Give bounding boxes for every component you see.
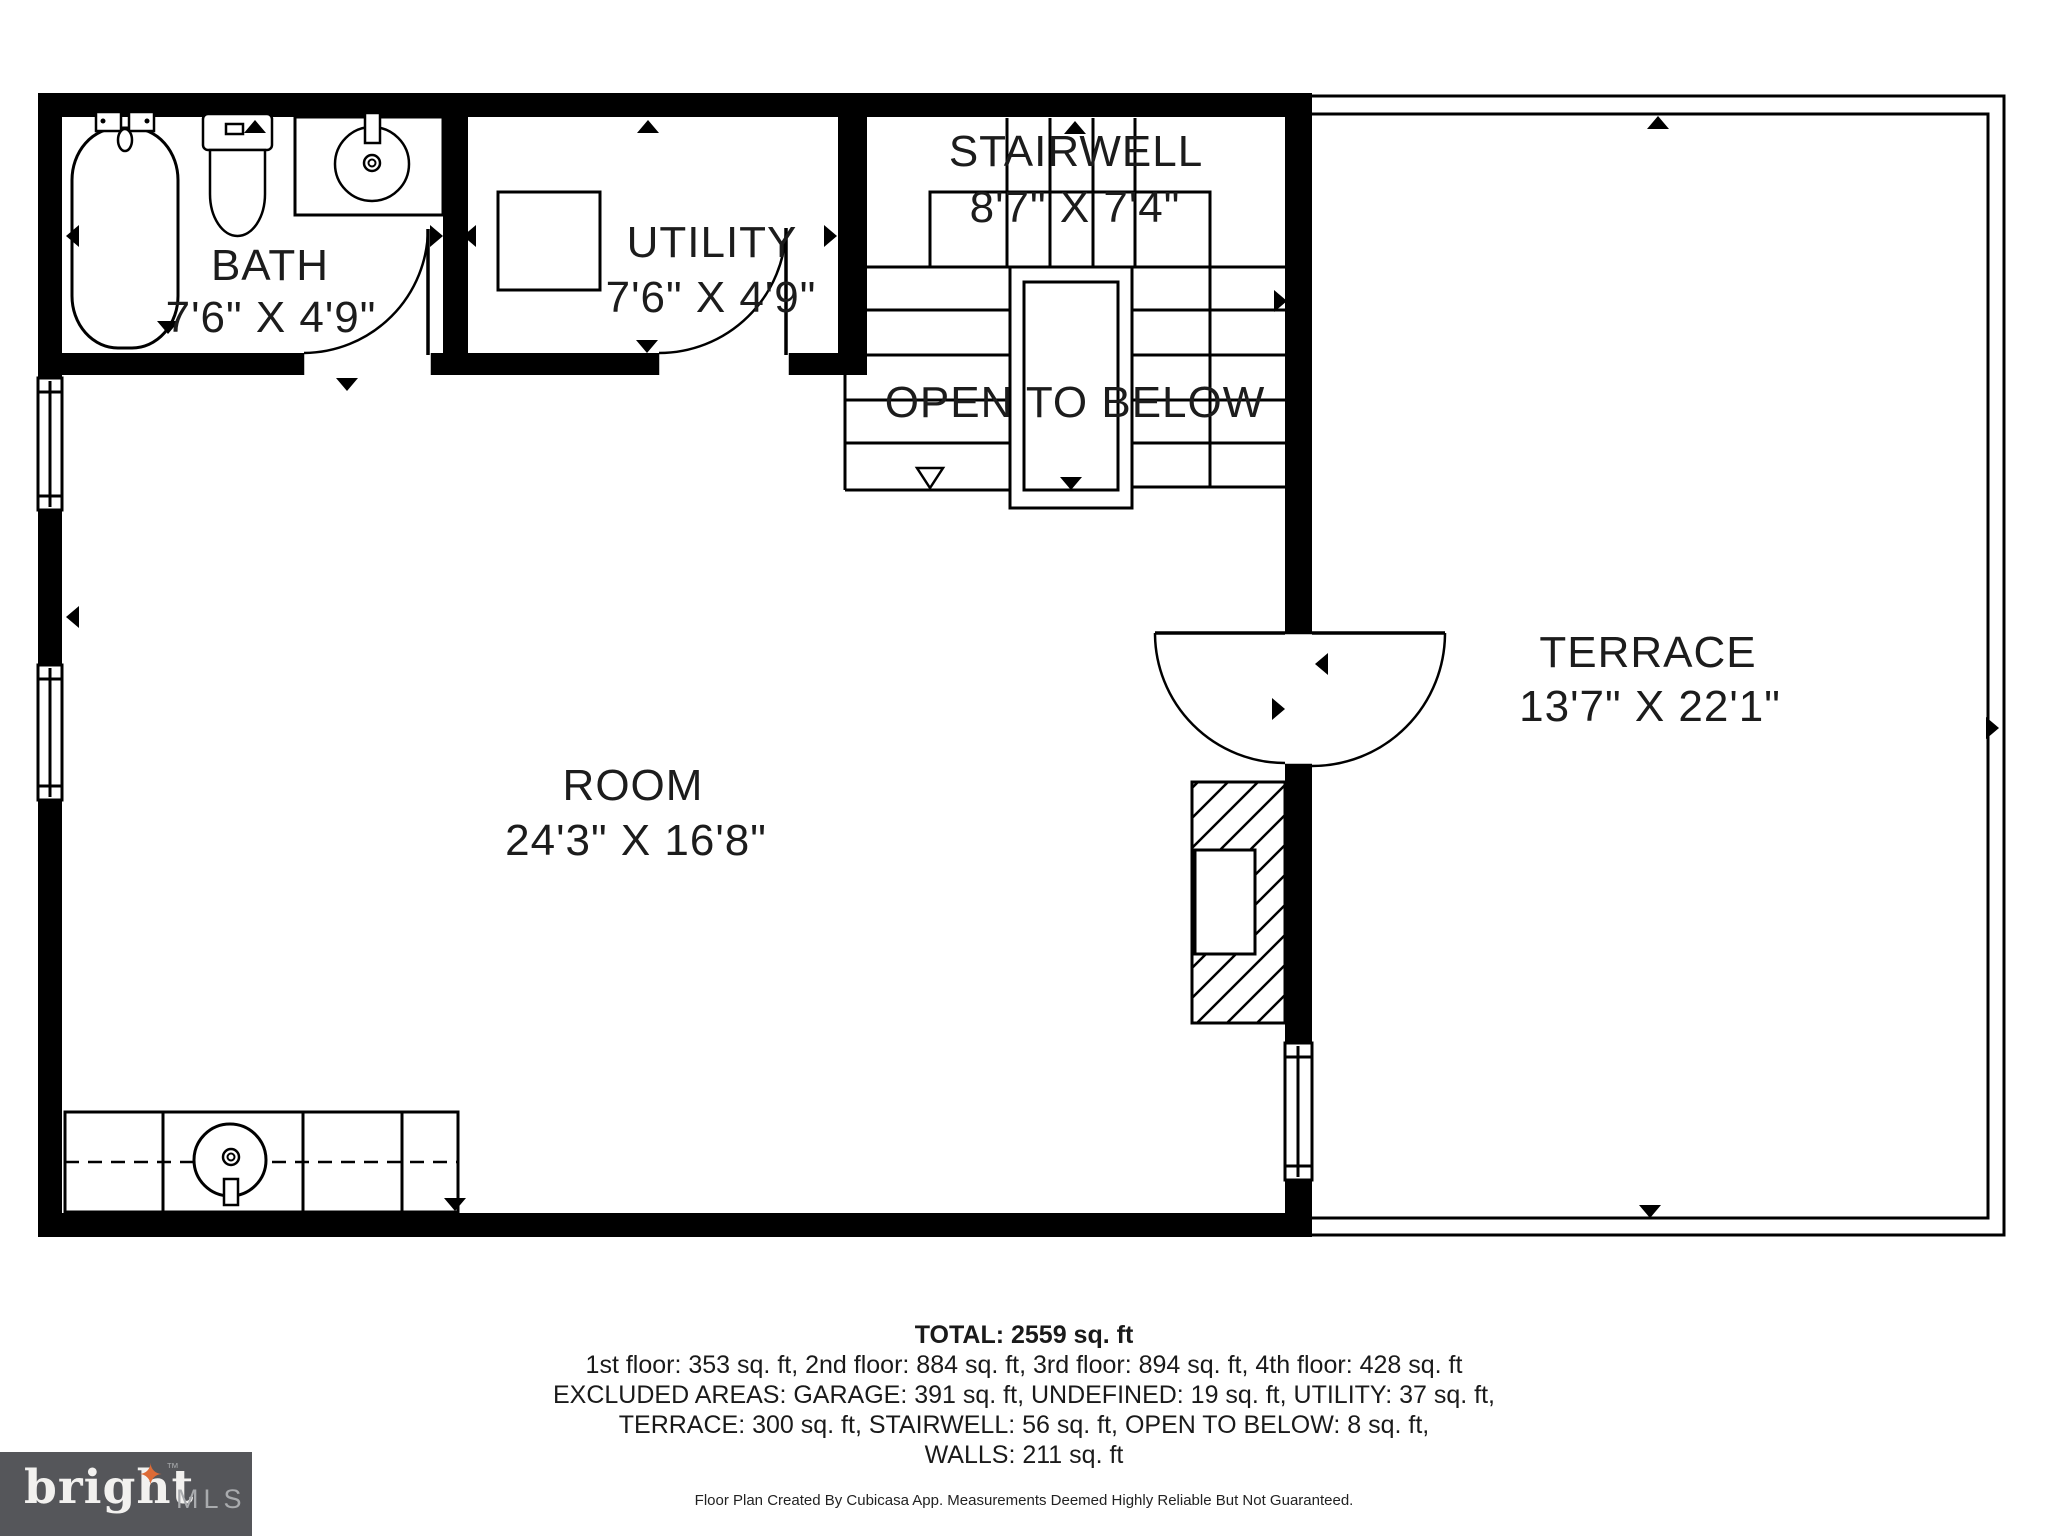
floors-area-text: 1st floor: 353 sq. ft, 2nd floor: 884 sq…: [0, 1350, 2048, 1380]
arrow-left-room: [66, 606, 79, 628]
bottom-wall: [38, 1213, 1312, 1237]
window-left-upper: [38, 378, 62, 510]
arrow-down-utility: [636, 340, 658, 353]
utility-label: UTILITY: [627, 218, 798, 267]
star-icon: ✦: [138, 1458, 163, 1493]
stair-direction-open-arrow: [917, 468, 943, 488]
stairwell-label: STAIRWELL: [949, 127, 1203, 176]
window-right: [1285, 1043, 1312, 1180]
terrace-dimensions: 13'7" X 22'1": [1519, 682, 1781, 731]
window-left-lower: [38, 665, 62, 800]
excluded-areas-text-2: TERRACE: 300 sq. ft, STAIRWELL: 56 sq. f…: [0, 1410, 2048, 1440]
utility-appliance: [498, 192, 600, 290]
room-dimensions: 24'3" X 16'8": [505, 816, 767, 865]
right-wall-lower: [1285, 1180, 1312, 1220]
stairwell-dimensions: 8'7" X 7'4": [970, 183, 1181, 232]
room-labels: BATH 7'6" X 4'9" UTILITY 7'6" X 4'9" STA…: [166, 127, 1781, 865]
floor-plan-page: { "floor_plan": { "rooms": [ {"name": "B…: [0, 0, 2048, 1536]
total-area-text: TOTAL: 2559 sq. ft: [0, 1320, 2048, 1350]
trademark-symbol: ™: [166, 1460, 179, 1475]
right-wall-upper: [1285, 93, 1312, 633]
bath-sink: [295, 113, 443, 215]
excluded-areas-text-1: EXCLUDED AREAS: GARAGE: 391 sq. ft, UNDE…: [0, 1380, 2048, 1410]
arrow-up-terrace: [1647, 116, 1669, 129]
arrow-right-terrace-edge: [1986, 717, 1999, 739]
arrow-left-terrace: [1315, 653, 1328, 675]
bath-utility-bottom-wall-1: [38, 353, 303, 375]
arrow-down-terrace: [1639, 1205, 1661, 1218]
bath-label: BATH: [211, 241, 329, 290]
right-wall-middle: [1285, 765, 1312, 1043]
arrow-up-utility: [637, 120, 659, 133]
bath-dimensions: 7'6" X 4'9": [166, 293, 377, 342]
area-summary: TOTAL: 2559 sq. ft 1st floor: 353 sq. ft…: [0, 1320, 2048, 1509]
stairs: [845, 118, 1285, 508]
arrow-right-bath: [430, 225, 443, 247]
bright-mls-logo: bright ✦ ™ MLS: [0, 1452, 252, 1536]
kitchen-counter: [65, 1112, 458, 1212]
logo-suffix: MLS: [176, 1484, 247, 1515]
open-to-below-label: OPEN TO BELOW: [885, 378, 1266, 427]
terrace-double-door: [1155, 633, 1445, 766]
bathtub: [72, 112, 178, 348]
hatched-shaft: [1192, 782, 1285, 1023]
terrace-label: TERRACE: [1539, 628, 1756, 677]
arrow-down-room-top: [336, 378, 358, 391]
walls-area-text: WALLS: 211 sq. ft: [0, 1440, 2048, 1470]
arrow-right-room: [1272, 698, 1285, 720]
disclaimer-text: Floor Plan Created By Cubicasa App. Meas…: [0, 1492, 2048, 1509]
floor-plan-drawing: BATH 7'6" X 4'9" UTILITY 7'6" X 4'9" STA…: [0, 0, 2048, 1536]
utility-dimensions: 7'6" X 4'9": [606, 273, 817, 322]
bath-utility-divider-wall: [443, 117, 468, 375]
arrow-down-stair: [1060, 477, 1082, 490]
utility-stairwell-divider-wall: [838, 117, 867, 375]
arrow-right-utility: [824, 225, 837, 247]
room-label: ROOM: [563, 761, 704, 810]
